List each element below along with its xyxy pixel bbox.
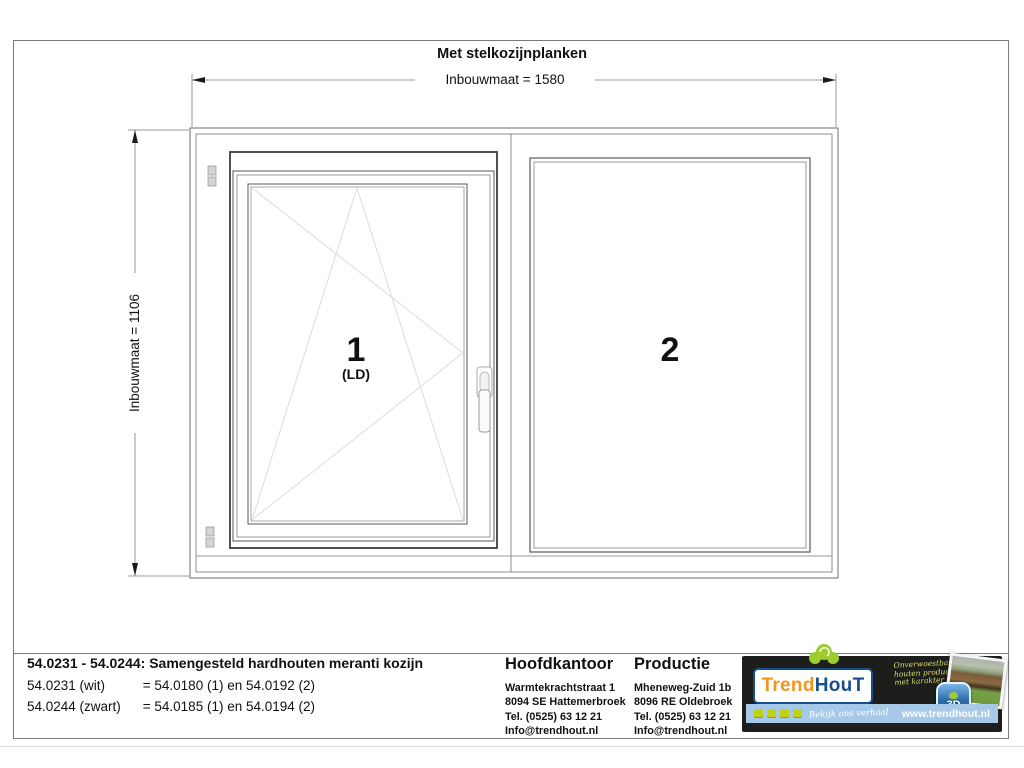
- dimension-arrow-bottom: [132, 563, 138, 576]
- wordmark-trend: Trend: [762, 675, 815, 697]
- social-icon: [780, 709, 789, 718]
- variant-row: 54.0244 (zwart) = 54.0185 (1) en 54.0194…: [27, 696, 423, 717]
- variant-mapping: = 54.0185 (1) en 54.0194 (2): [143, 699, 315, 714]
- cta-script-text: Bekijk ons verhaal: [809, 707, 889, 720]
- variant-row: 54.0231 (wit) = 54.0180 (1) en 54.0192 (…: [27, 675, 423, 696]
- drawing-sheet: Met stelkozijnplanken: [0, 0, 1024, 768]
- dimension-arrow-right: [823, 77, 836, 83]
- phone-line: Tel. (0525) 63 12 21: [505, 710, 626, 724]
- trendhout-wordmark: TrendHouT: [753, 668, 873, 704]
- social-icon: [767, 709, 776, 718]
- product-title: 54.0231 - 54.0244: Samengesteld hardhout…: [27, 655, 423, 671]
- phone-line: Tel. (0525) 63 12 21: [634, 710, 732, 724]
- address-line: 8096 RE Oldebroek: [634, 695, 732, 709]
- variant-code: 54.0244 (zwart): [27, 696, 139, 717]
- variant-mapping: = 54.0180 (1) en 54.0192 (2): [143, 678, 315, 693]
- dimension-height-label: Inbouwmaat = 1106: [127, 273, 143, 433]
- address-line: 8094 SE Hattemerbroek: [505, 695, 626, 709]
- panel-2-number: 2: [630, 333, 710, 367]
- panel-1-number: 1: [316, 333, 396, 367]
- dimension-arrow-top: [132, 130, 138, 143]
- social-icons: [754, 709, 802, 718]
- hoofdkantoor-column: Hoofdkantoor Warmtekrachtstraat 1 8094 S…: [505, 655, 626, 739]
- dimension-width-label: Inbouwmaat = 1580: [415, 72, 595, 88]
- productie-heading: Productie: [634, 655, 732, 674]
- social-icon: [754, 709, 763, 718]
- wordmark-hout: HouT: [815, 675, 865, 697]
- address-line: Mheneweg-Zuid 1b: [634, 681, 732, 695]
- tree-icon: [802, 643, 846, 671]
- logo-bottom-bar: Bekijk ons verhaal www.trendhout.nl: [746, 704, 998, 723]
- title-block-divider: [13, 653, 1009, 654]
- variant-code: 54.0231 (wit): [27, 675, 139, 696]
- window-technical-drawing: [0, 0, 1024, 660]
- address-line: Warmtekrachtstraat 1: [505, 681, 626, 695]
- dimension-arrow-left: [192, 77, 205, 83]
- hoofdkantoor-heading: Hoofdkantoor: [505, 655, 626, 674]
- product-info: 54.0231 - 54.0244: Samengesteld hardhout…: [27, 655, 423, 717]
- productie-column: Productie Mheneweg-Zuid 1b 8096 RE Oldeb…: [634, 655, 732, 739]
- email-line: Info@trendhout.nl: [505, 724, 626, 738]
- trendhout-logo-block: TrendHouT Onverwoestbare houten producte…: [742, 656, 1002, 732]
- panel-1-type-label: (LD): [316, 366, 396, 382]
- email-line: Info@trendhout.nl: [634, 724, 732, 738]
- social-icon: [793, 709, 802, 718]
- website-url: www.trendhout.nl: [902, 708, 990, 720]
- hinge-marks: [206, 166, 216, 547]
- page-bottom-line: [0, 746, 1024, 747]
- window-handle: [477, 367, 492, 432]
- badge-tree-icon: [949, 692, 958, 699]
- stelkozijn-frame: [190, 128, 838, 578]
